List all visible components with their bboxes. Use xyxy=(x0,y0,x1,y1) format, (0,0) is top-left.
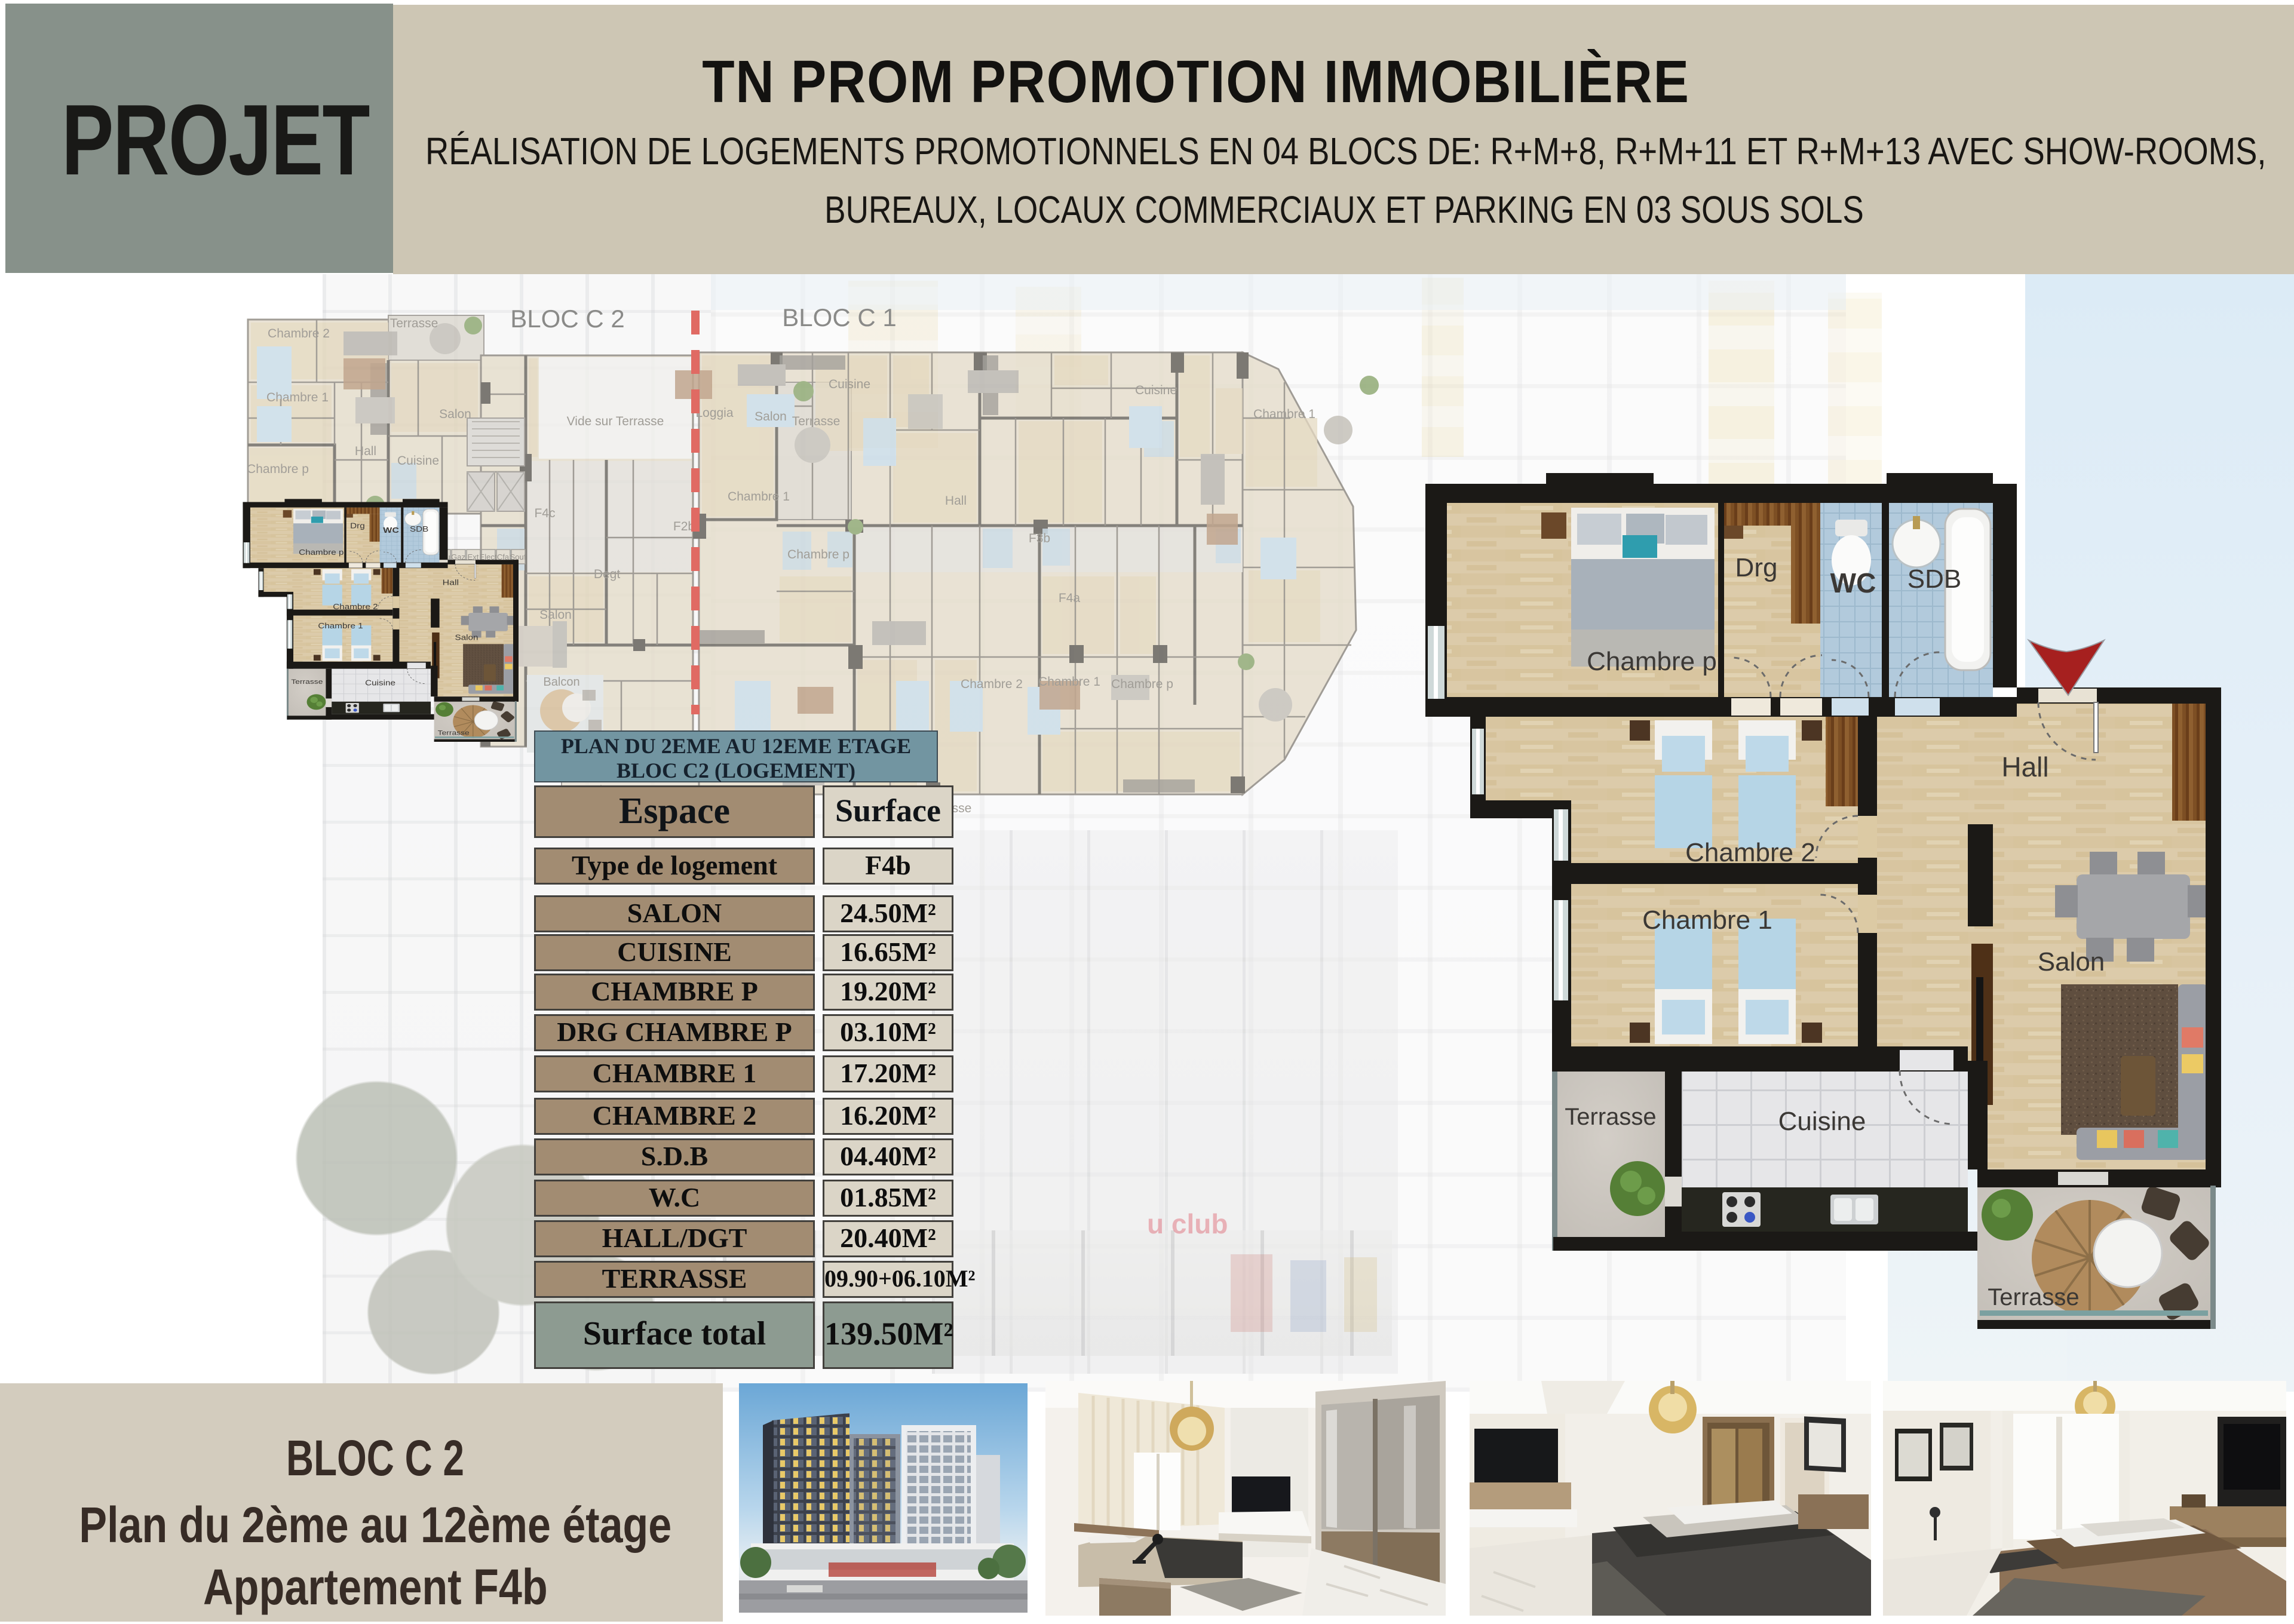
svg-text:Salon: Salon xyxy=(539,608,572,622)
svg-text:Terrasse: Terrasse xyxy=(792,415,841,428)
svg-text:BLOC C 2: BLOC C 2 xyxy=(510,305,624,333)
svg-text:F3b: F3b xyxy=(1029,532,1050,545)
svg-text:Terrasse: Terrasse xyxy=(390,317,438,330)
svg-text:Vide sur Terrasse: Vide sur Terrasse xyxy=(567,415,664,428)
svg-text:Cuisine: Cuisine xyxy=(397,454,439,468)
svg-text:Hall: Hall xyxy=(355,444,376,458)
svg-text:Salon: Salon xyxy=(439,407,471,421)
svg-text:Chambre 2: Chambre 2 xyxy=(268,327,330,340)
svg-text:Balcon: Balcon xyxy=(543,676,579,689)
svg-text:Chambre 1: Chambre 1 xyxy=(1253,407,1315,421)
svg-text:BLOC C 1: BLOC C 1 xyxy=(782,303,896,331)
svg-text:Chambre p: Chambre p xyxy=(247,462,309,476)
svg-text:Cuisine: Cuisine xyxy=(1135,383,1177,397)
svg-text:Degt: Degt xyxy=(594,567,621,581)
svg-text:Chambre 2: Chambre 2 xyxy=(961,677,1023,691)
svg-text:Loggia: Loggia xyxy=(695,406,733,420)
svg-text:Chambre p: Chambre p xyxy=(787,548,849,561)
svg-text:F4c: F4c xyxy=(534,506,555,520)
svg-text:Chambre 1: Chambre 1 xyxy=(728,490,790,504)
svg-text:Salon: Salon xyxy=(755,410,787,423)
svg-text:F4a: F4a xyxy=(1059,591,1081,605)
svg-text:Chambre p: Chambre p xyxy=(1111,677,1173,691)
svg-text:Cuisine: Cuisine xyxy=(829,377,870,391)
svg-text:Chambre 1: Chambre 1 xyxy=(266,391,329,404)
svg-text:Chambre 1: Chambre 1 xyxy=(1038,675,1100,689)
svg-text:Hall: Hall xyxy=(945,494,967,508)
